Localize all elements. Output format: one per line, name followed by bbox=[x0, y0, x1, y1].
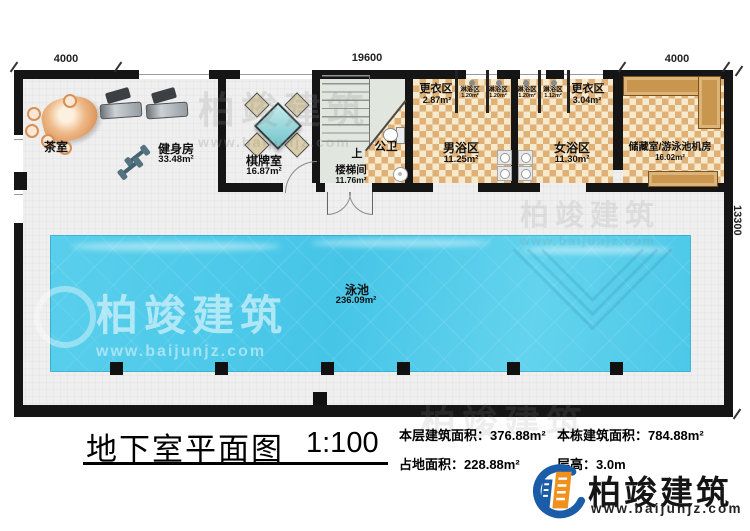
tea-stool bbox=[25, 124, 39, 138]
stat-value: 784.88m² bbox=[648, 428, 704, 443]
stat-value: 376.88m² bbox=[490, 428, 546, 443]
tea-stool bbox=[63, 94, 77, 108]
storage-counter bbox=[698, 76, 721, 129]
room-area-changing-m: 2.87m² bbox=[423, 96, 452, 105]
stat-label: 本栋建筑面积： bbox=[557, 428, 648, 443]
wall-segment bbox=[14, 405, 733, 417]
room-label-tea: 茶室 bbox=[44, 141, 68, 153]
stair-up-label: 上 bbox=[352, 149, 363, 160]
washbasin-icon bbox=[518, 150, 533, 165]
column bbox=[397, 362, 410, 375]
room-label-bath-m: 男浴区 bbox=[443, 142, 479, 154]
floor-plan-page: 柏竣建筑 www.baijunjz.com 柏竣建筑 www.baijunjz.… bbox=[0, 0, 750, 531]
stall-divider bbox=[538, 70, 541, 113]
washbasin-icon bbox=[518, 166, 533, 181]
wall-pier bbox=[14, 172, 27, 190]
wall-segment bbox=[14, 223, 23, 417]
brand-logo-icon bbox=[529, 464, 587, 520]
brand-website: www.baijunjz.com bbox=[591, 501, 743, 516]
room-area-stair: 11.76m² bbox=[335, 176, 366, 185]
column bbox=[321, 362, 334, 375]
stat-floor-area: 本层建筑面积：376.88m² bbox=[399, 425, 557, 444]
dimension-top-right: 4000 bbox=[657, 53, 697, 65]
stall-divider bbox=[455, 70, 458, 113]
stat-label: 占地面积： bbox=[399, 457, 464, 472]
wall-segment bbox=[14, 70, 139, 79]
toilet-icon bbox=[383, 128, 398, 142]
wall-segment bbox=[316, 183, 325, 192]
wall-segment bbox=[546, 70, 564, 79]
column bbox=[215, 362, 228, 375]
window bbox=[14, 190, 23, 223]
storage-counter bbox=[623, 76, 702, 96]
room-label-changing-f: 更衣区 bbox=[572, 84, 605, 95]
storage-counter bbox=[648, 171, 718, 187]
room-area-storage: 16.02m² bbox=[655, 154, 685, 162]
wall-segment bbox=[372, 183, 433, 192]
window bbox=[240, 70, 316, 79]
stat-label: 本层建筑面积： bbox=[399, 428, 490, 443]
window bbox=[14, 135, 23, 172]
room-area-shower1: 1.20m² bbox=[461, 94, 478, 100]
room-area-pool: 236.09m² bbox=[336, 296, 377, 306]
dim-tick bbox=[735, 66, 744, 77]
washbasin-icon bbox=[497, 150, 512, 165]
column bbox=[507, 362, 520, 375]
dimension-top-left: 4000 bbox=[46, 53, 86, 65]
room-label-storage: 储藏室/游泳池机房 bbox=[629, 143, 712, 153]
room-label-bath-f: 女浴区 bbox=[554, 142, 590, 154]
title-underline bbox=[83, 462, 388, 465]
treadmill-icon bbox=[146, 102, 189, 120]
stair-treads bbox=[322, 75, 370, 149]
sink-icon bbox=[393, 167, 408, 182]
column bbox=[313, 392, 327, 405]
wall-segment bbox=[14, 70, 23, 135]
room-area-shower3: 1.20m² bbox=[518, 94, 535, 100]
column bbox=[110, 362, 123, 375]
dim-tick bbox=[733, 409, 742, 420]
dimension-right: 13300 bbox=[731, 205, 743, 236]
wall-segment bbox=[218, 70, 226, 192]
room-area-bath-m: 11.25m² bbox=[444, 155, 479, 165]
stat-value: 228.88m² bbox=[464, 457, 520, 472]
dimension-top-center: 19600 bbox=[342, 52, 392, 64]
room-area-shower4: 1.12m² bbox=[544, 94, 561, 100]
window bbox=[466, 70, 497, 79]
treadmill-icon bbox=[100, 102, 143, 120]
window bbox=[139, 70, 209, 79]
drawing-scale: 1:100 bbox=[306, 427, 379, 460]
wall-segment bbox=[478, 183, 540, 192]
wall-segment bbox=[613, 70, 623, 170]
wall-segment bbox=[218, 183, 283, 192]
room-label-changing-m: 更衣区 bbox=[420, 84, 453, 95]
window bbox=[520, 70, 546, 79]
watermark-logo-icon bbox=[34, 286, 96, 348]
stat-building-area: 本栋建筑面积：784.88m² bbox=[557, 425, 704, 444]
room-label-wc: 公卫 bbox=[375, 142, 398, 154]
column bbox=[610, 362, 623, 375]
room-area-bath-f: 11.30m² bbox=[555, 155, 590, 165]
room-area-changing-f: 3.04m² bbox=[573, 96, 602, 105]
room-area-chess: 16.87m² bbox=[246, 167, 281, 177]
room-label-stair: 楼梯间 bbox=[335, 165, 367, 176]
room-area-gym: 33.48m² bbox=[158, 155, 193, 165]
room-area-shower2: 1.20m² bbox=[489, 94, 506, 100]
stall-divider bbox=[567, 70, 570, 113]
tea-stool bbox=[27, 107, 41, 121]
pool-wave bbox=[71, 242, 281, 251]
pool-wave bbox=[311, 239, 491, 247]
wall-segment bbox=[724, 70, 733, 417]
washbasin-icon bbox=[497, 166, 512, 181]
brand-logo-svg bbox=[529, 464, 587, 520]
